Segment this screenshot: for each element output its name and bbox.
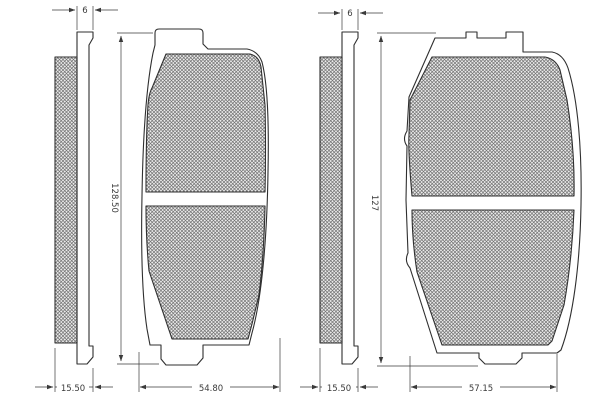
dim-label-right-backplate-thickness: 6 <box>347 9 352 19</box>
left-pad-side-friction-hatched <box>55 57 77 343</box>
right-pad-friction-upper-hatched <box>409 57 574 196</box>
dim-label-left-width: 54.80 <box>199 384 223 394</box>
right-pad-side-backplate <box>342 32 358 364</box>
right-pad-side-friction-hatched <box>320 57 342 343</box>
brake-pad-drawing: 6 128.50 15.50 54.80 6 127 15.50 57.15 <box>0 0 600 400</box>
right-pad-friction-lower-hatched <box>412 210 574 345</box>
left-pad-friction-upper-hatched <box>146 54 266 192</box>
drawing-canvas: 6 128.50 15.50 54.80 6 127 15.50 57.15 <box>0 0 600 400</box>
dim-label-right-height: 127 <box>369 195 379 211</box>
dim-label-right-width: 57.15 <box>469 384 493 394</box>
dim-label-left-backplate-thickness: 6 <box>82 6 87 16</box>
left-pad-group <box>55 29 268 365</box>
right-pad-group <box>320 32 581 364</box>
dim-label-right-total-thickness: 15.50 <box>327 384 351 394</box>
left-pad-side-backplate <box>77 32 93 364</box>
dim-label-left-height: 128.50 <box>109 183 119 213</box>
dim-label-left-total-thickness: 15.50 <box>61 384 85 394</box>
